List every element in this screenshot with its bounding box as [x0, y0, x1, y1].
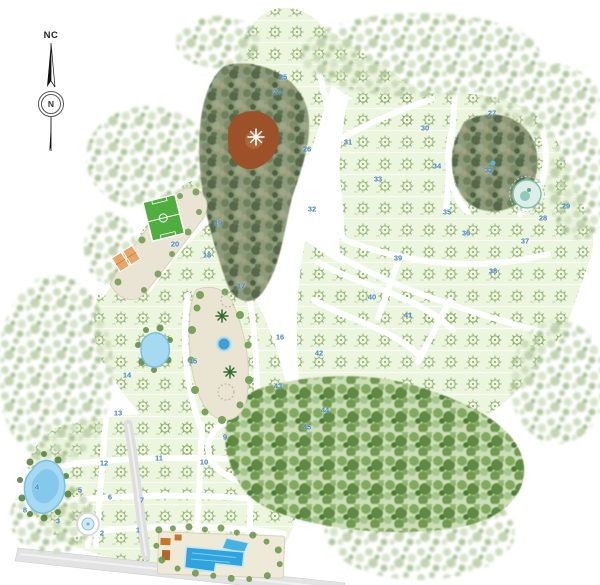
palm-icon	[224, 366, 236, 378]
roundabout	[77, 513, 99, 535]
compass-ring: N	[38, 91, 64, 117]
clubhouse-building	[175, 534, 182, 540]
north-compass: NC N	[28, 30, 74, 153]
master-plan-svg	[0, 0, 600, 585]
compass-needle-icon	[45, 43, 57, 91]
park-fountain	[218, 338, 231, 351]
forest-spring	[491, 161, 496, 166]
site-plan-canvas: NC N 12345678910111213141516171819202425…	[0, 0, 600, 585]
clubhouse-building	[160, 538, 170, 545]
palm-icon	[216, 310, 228, 322]
compass-tail-icon	[46, 117, 56, 153]
starburst-icon	[248, 129, 264, 145]
compass-north-letter: N	[48, 99, 54, 109]
compass-title: NC	[44, 30, 59, 41]
